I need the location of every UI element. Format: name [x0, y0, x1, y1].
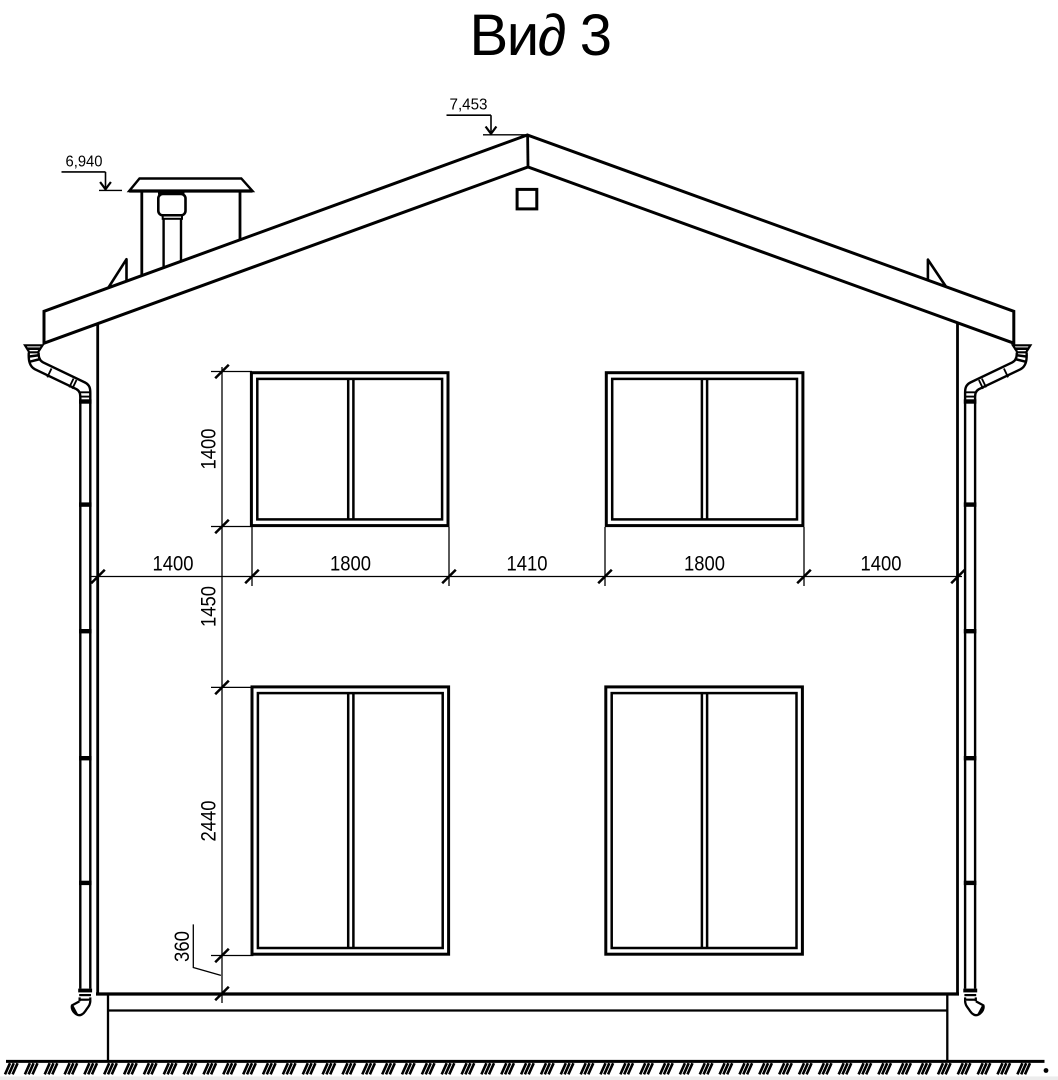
svg-text:1400: 1400 [153, 553, 194, 576]
svg-text:1800: 1800 [684, 553, 725, 576]
svg-text:6,940: 6,940 [66, 154, 103, 171]
svg-text:1410: 1410 [507, 553, 548, 576]
svg-text:7,453: 7,453 [450, 97, 488, 114]
svg-text:1450: 1450 [198, 586, 221, 627]
svg-text:1800: 1800 [330, 553, 371, 576]
svg-text:360: 360 [171, 931, 194, 962]
svg-text:Ви∂ 3: Ви∂ 3 [469, 3, 610, 68]
svg-text:1400: 1400 [861, 553, 902, 576]
svg-text:2440: 2440 [198, 801, 221, 842]
svg-text:1400: 1400 [198, 429, 221, 470]
